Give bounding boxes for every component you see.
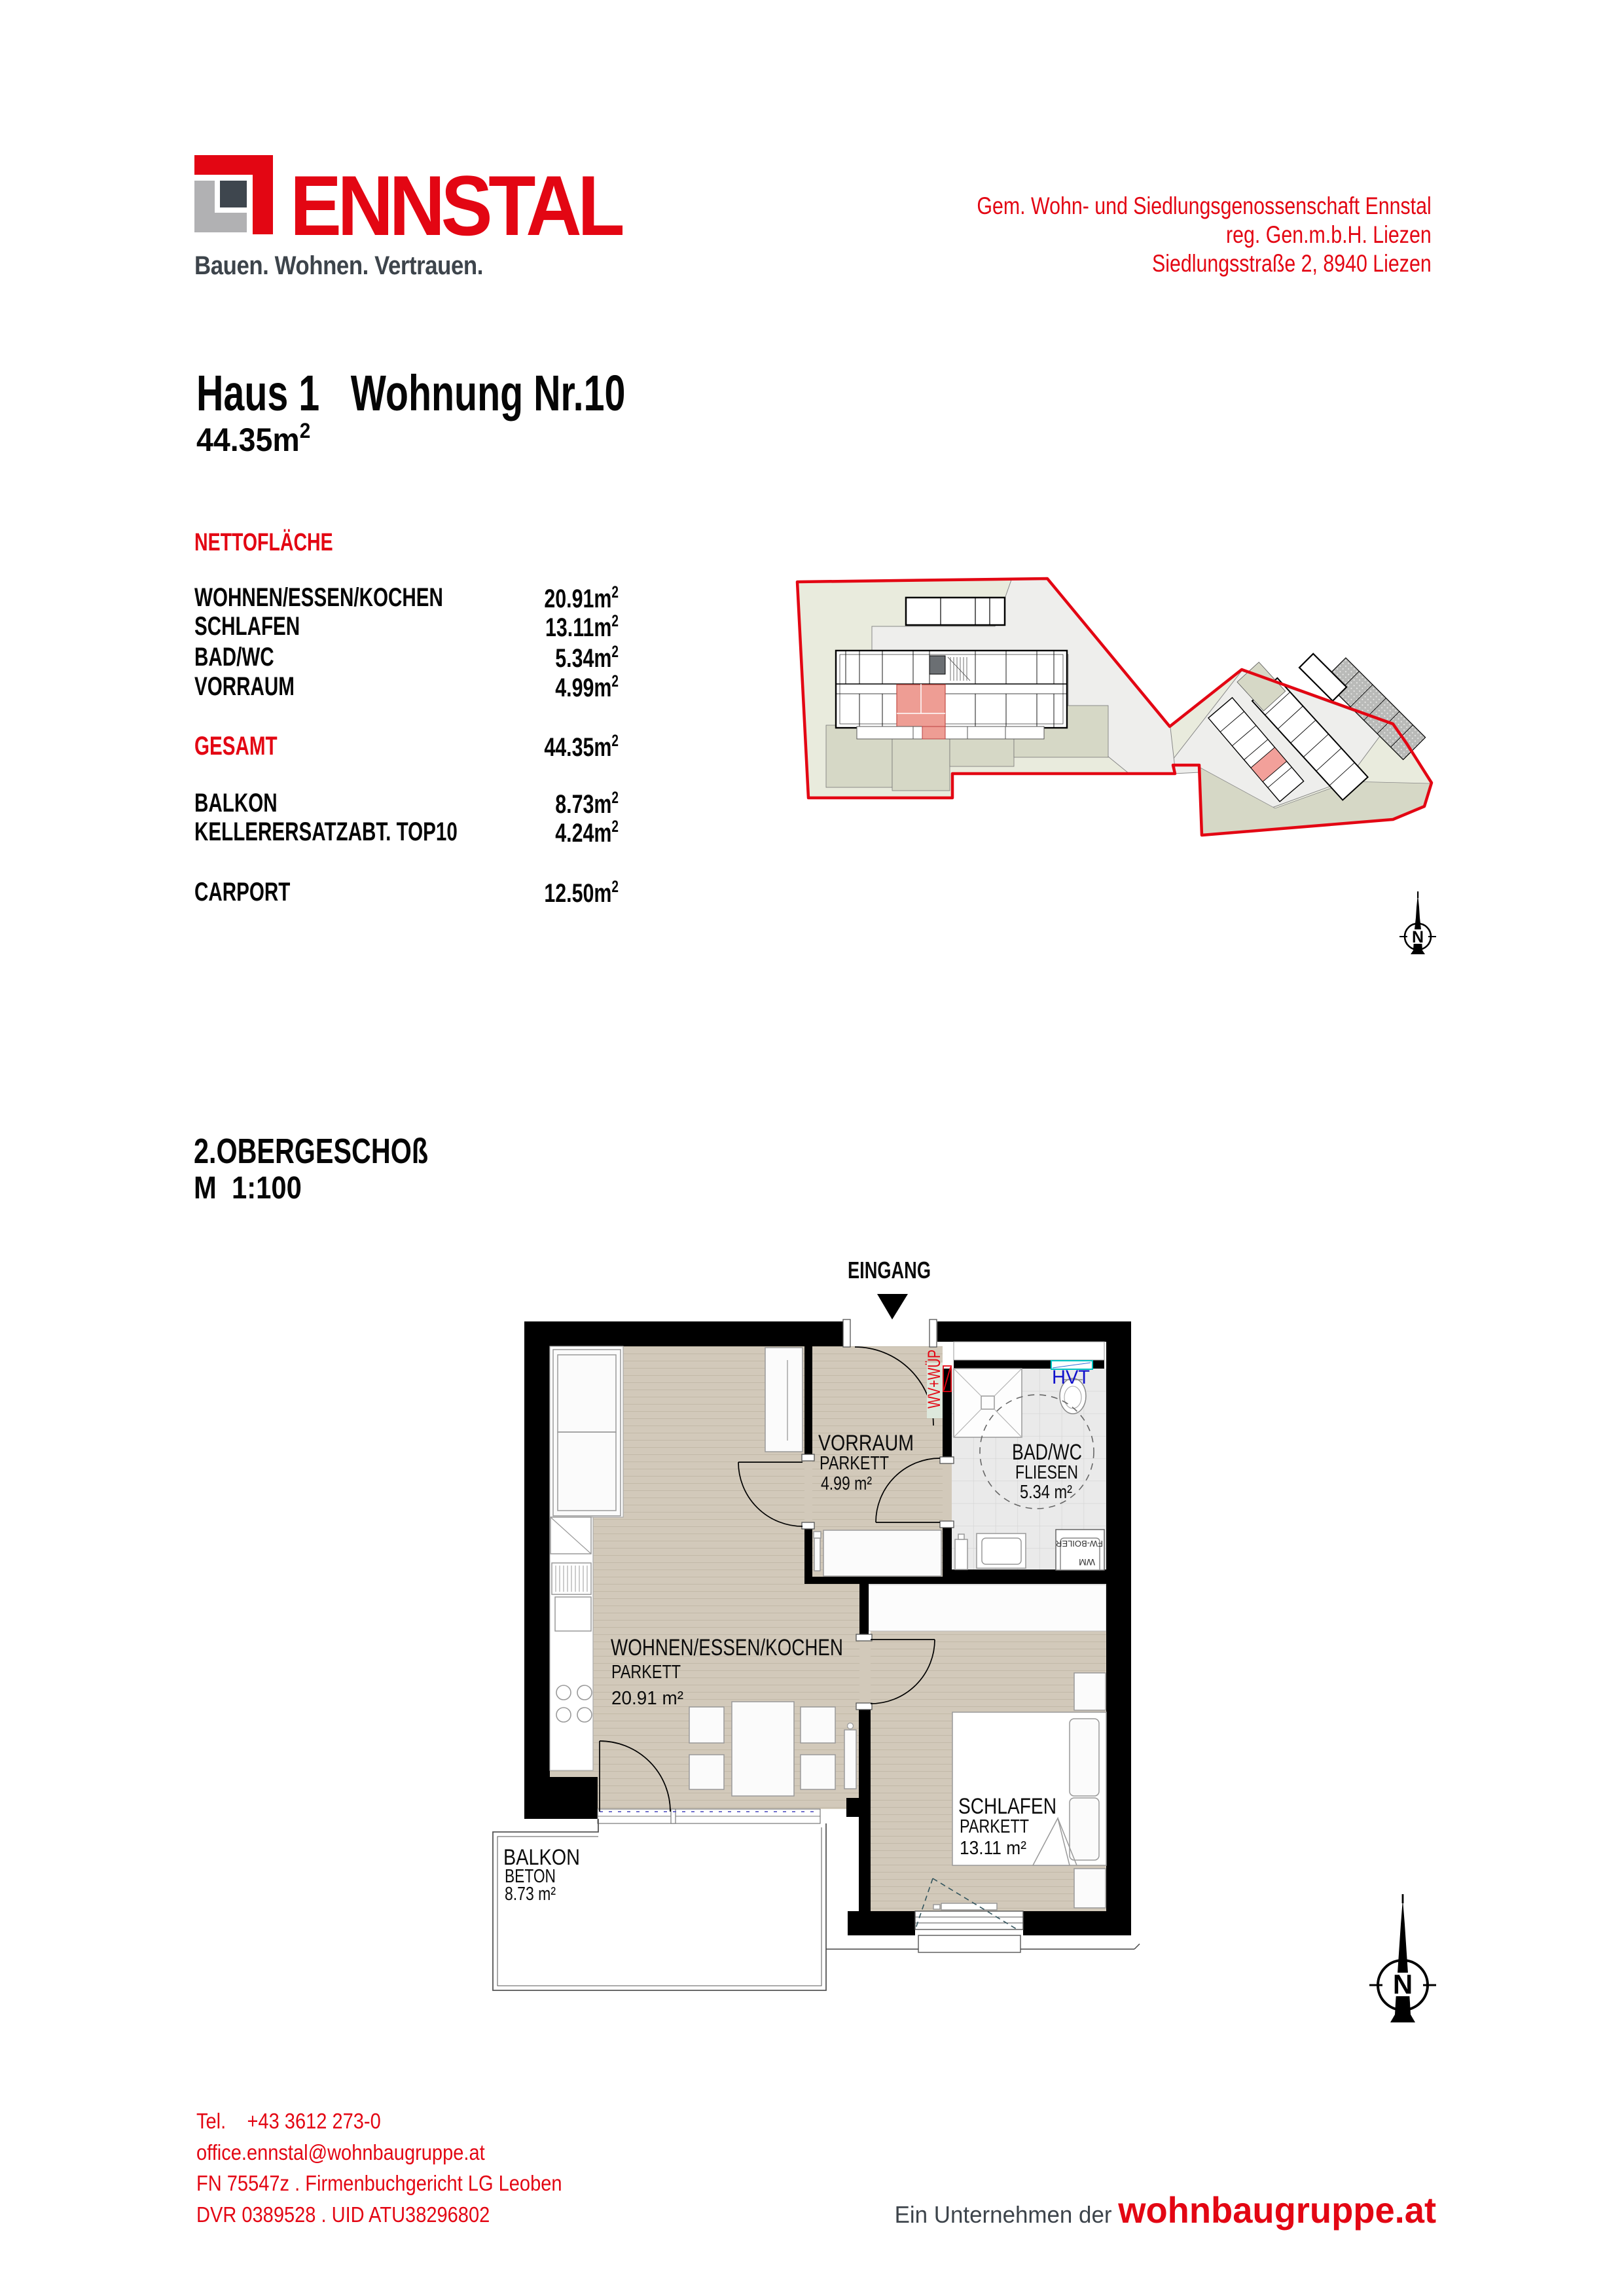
svg-text:VORRAUM: VORRAUM (818, 1431, 914, 1456)
svg-text:N: N (1412, 928, 1424, 946)
svg-text:N: N (1393, 1969, 1413, 2000)
svg-text:13.11 m²: 13.11 m² (960, 1838, 1026, 1859)
svg-text:PARKETT: PARKETT (960, 1816, 1029, 1837)
svg-text:4.99 m²: 4.99 m² (821, 1473, 872, 1494)
svg-text:FW-BOILER: FW-BOILER (1056, 1539, 1103, 1549)
svg-text:HVT: HVT (1052, 1367, 1090, 1388)
svg-text:WV+WÜP: WV+WÜP (924, 1350, 944, 1408)
svg-text:8.73 m²: 8.73 m² (505, 1884, 556, 1905)
svg-text:PARKETT: PARKETT (611, 1662, 681, 1683)
svg-text:PARKETT: PARKETT (820, 1453, 889, 1474)
svg-text:20.91 m²: 20.91 m² (611, 1688, 683, 1709)
svg-text:WM: WM (1079, 1557, 1095, 1568)
svg-text:SCHLAFEN: SCHLAFEN (958, 1794, 1056, 1819)
svg-text:5.34 m²: 5.34 m² (1020, 1482, 1072, 1503)
svg-text:WOHNEN/ESSEN/KOCHEN: WOHNEN/ESSEN/KOCHEN (611, 1635, 843, 1660)
svg-text:BAD/WC: BAD/WC (1012, 1440, 1082, 1465)
svg-text:FLIESEN: FLIESEN (1015, 1462, 1078, 1483)
svg-text:EINGANG: EINGANG (848, 1257, 931, 1283)
